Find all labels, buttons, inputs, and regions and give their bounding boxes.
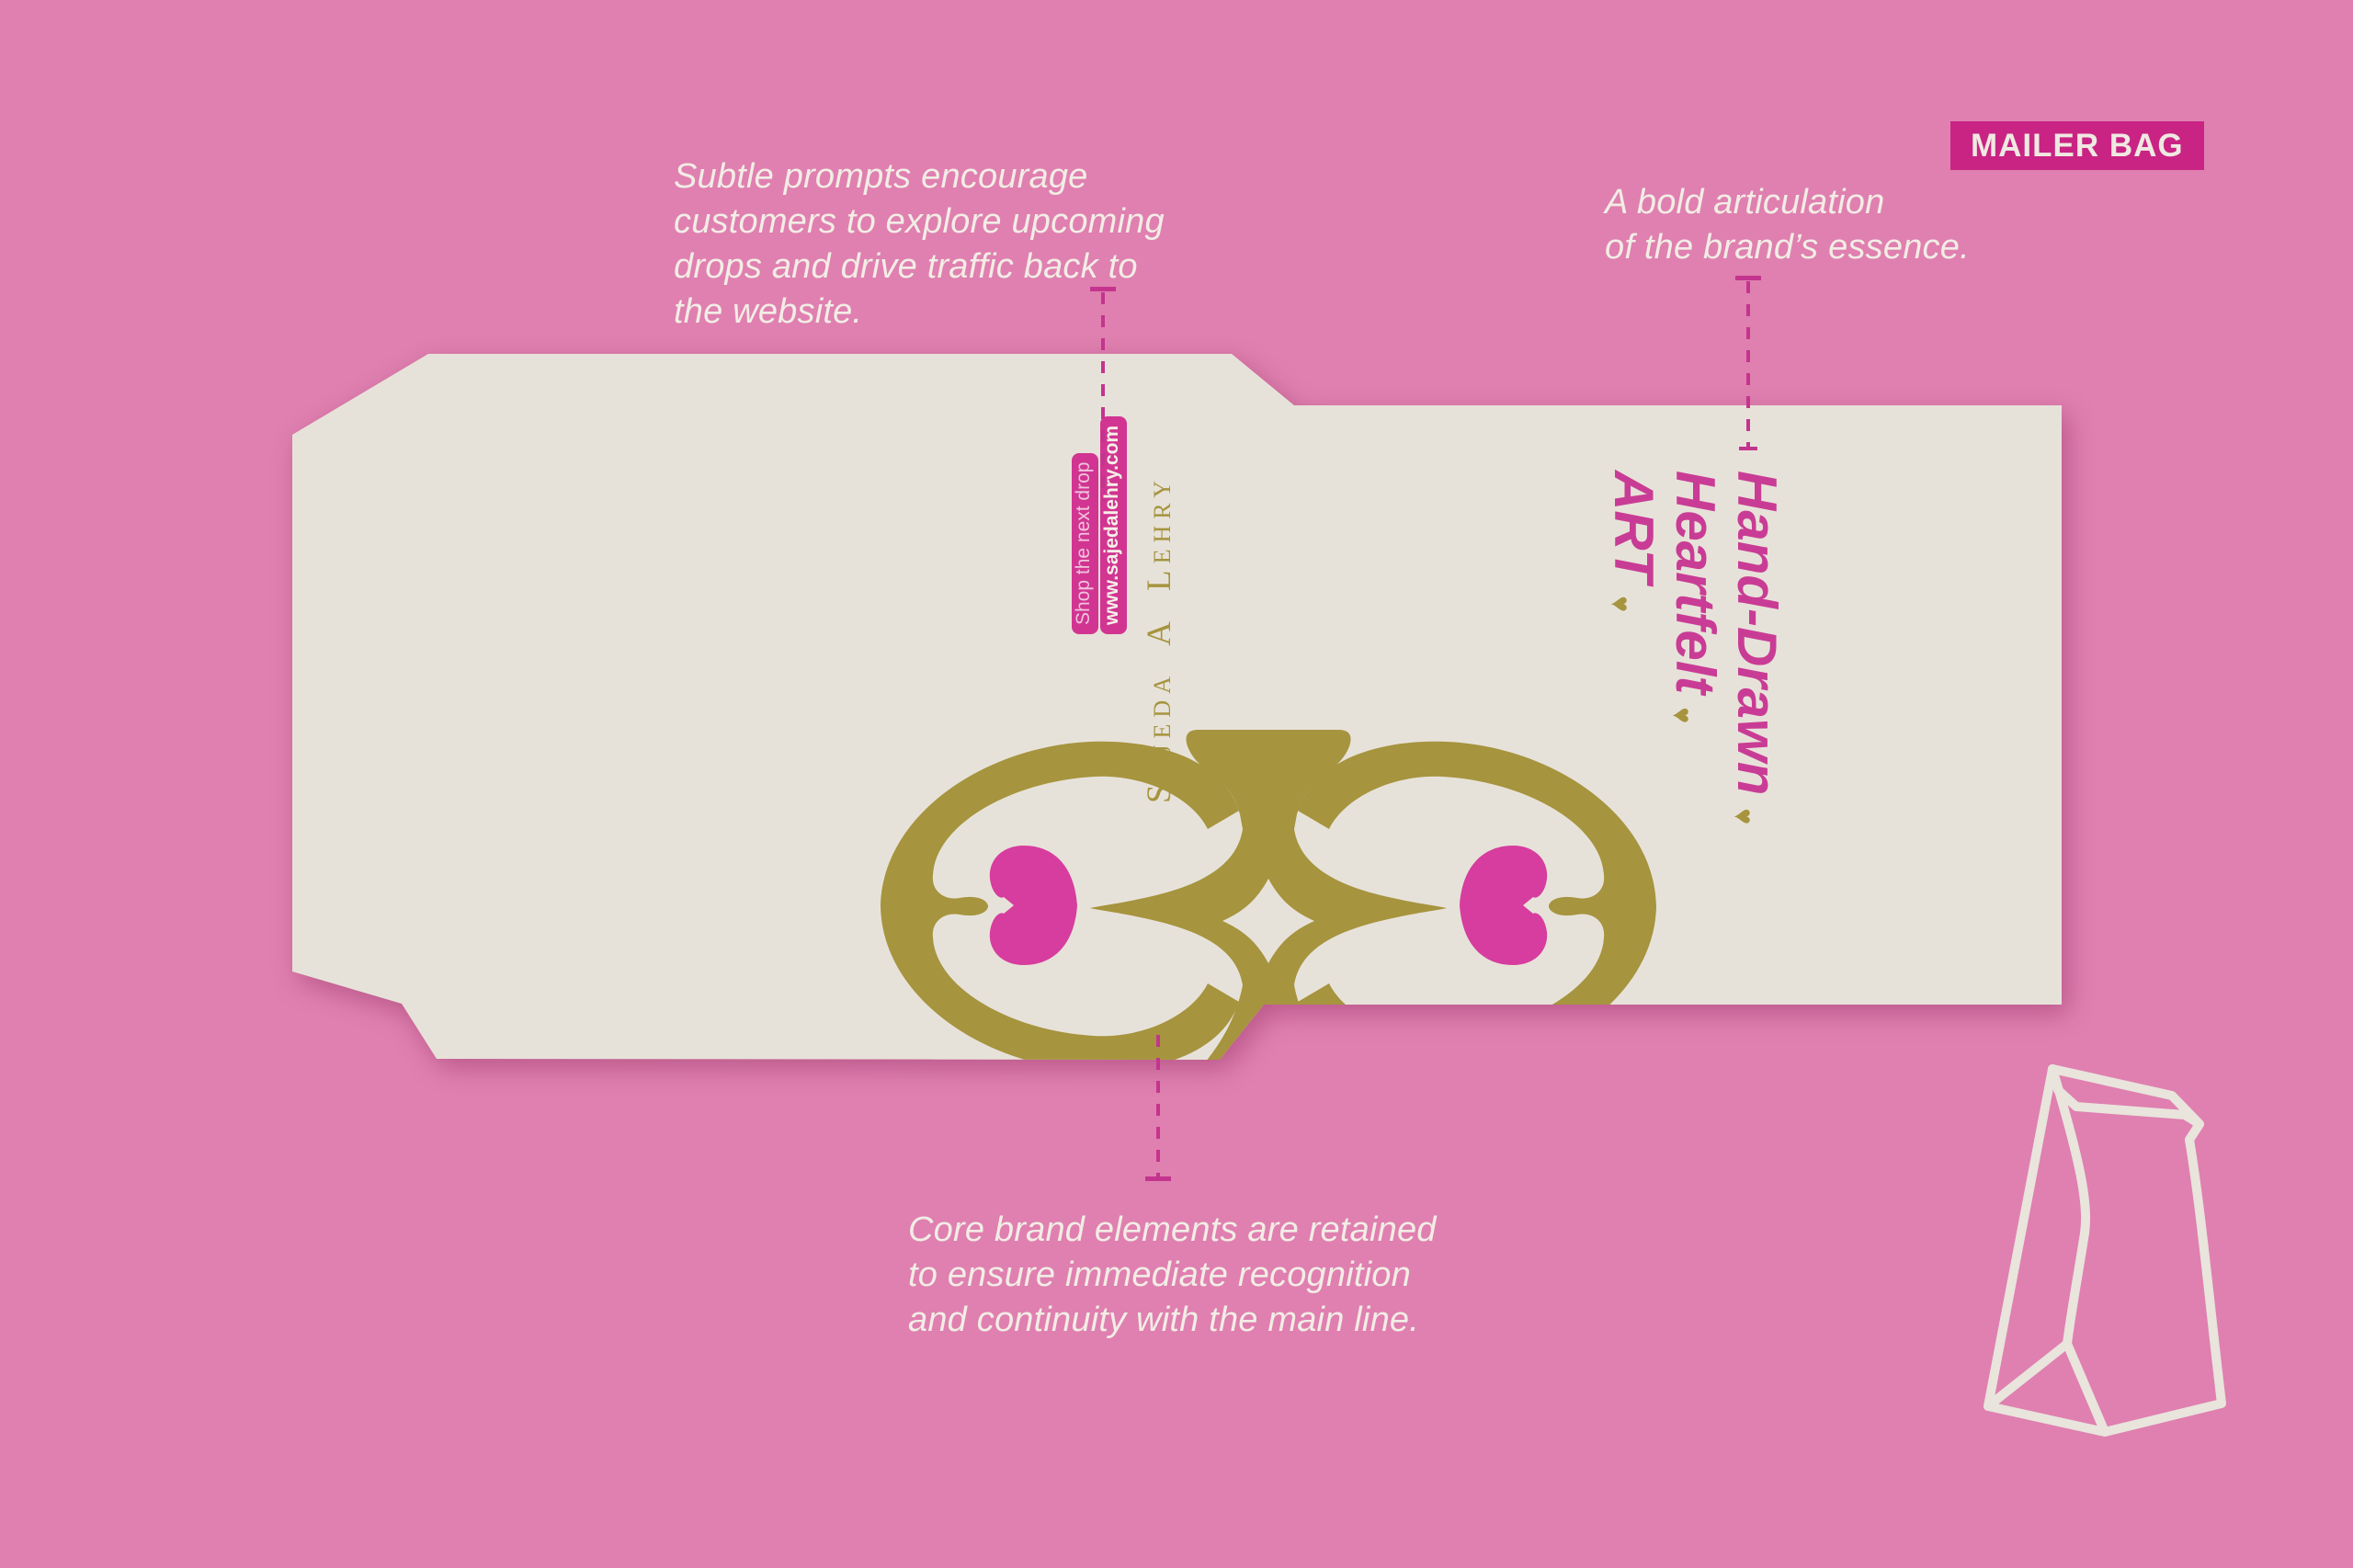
ornament-heart-left bbox=[990, 846, 1077, 965]
brand-name: Sajeda A Lehry bbox=[1140, 417, 1179, 803]
slogan-word: ART♥ bbox=[1600, 471, 1662, 866]
presentation-canvas: Subtle prompts encourage customers to ex… bbox=[0, 0, 2353, 1568]
slogan-word-text: ART bbox=[1603, 471, 1665, 583]
slogan-word: Heartfelt♥ bbox=[1662, 471, 1723, 866]
heart-icon: ♥ bbox=[1653, 707, 1710, 723]
leader-line-slogan bbox=[1746, 281, 1750, 447]
slogan-word: Hand-Drawn♥ bbox=[1723, 471, 1785, 866]
ornament-heart-right bbox=[1460, 846, 1547, 965]
paper-bag-icon bbox=[1981, 1064, 2229, 1441]
heart-icon: ♥ bbox=[1591, 596, 1648, 612]
slogan-word-text: Heartfelt bbox=[1665, 471, 1726, 694]
heart-icon: ♥ bbox=[1714, 808, 1771, 824]
leader-cap bbox=[1735, 276, 1761, 280]
leader-cap bbox=[1739, 447, 1757, 450]
heart-scroll-ornament-icon bbox=[864, 726, 1673, 1094]
leader-line-tag bbox=[1101, 292, 1105, 501]
slogan-word-text: Hand-Drawn bbox=[1726, 471, 1788, 795]
leader-line-ornament bbox=[1156, 1035, 1160, 1176]
leader-cap bbox=[1145, 1176, 1171, 1181]
leader-cap bbox=[1090, 287, 1116, 291]
promo-tag-caption: Shop the next drop bbox=[1072, 453, 1098, 634]
